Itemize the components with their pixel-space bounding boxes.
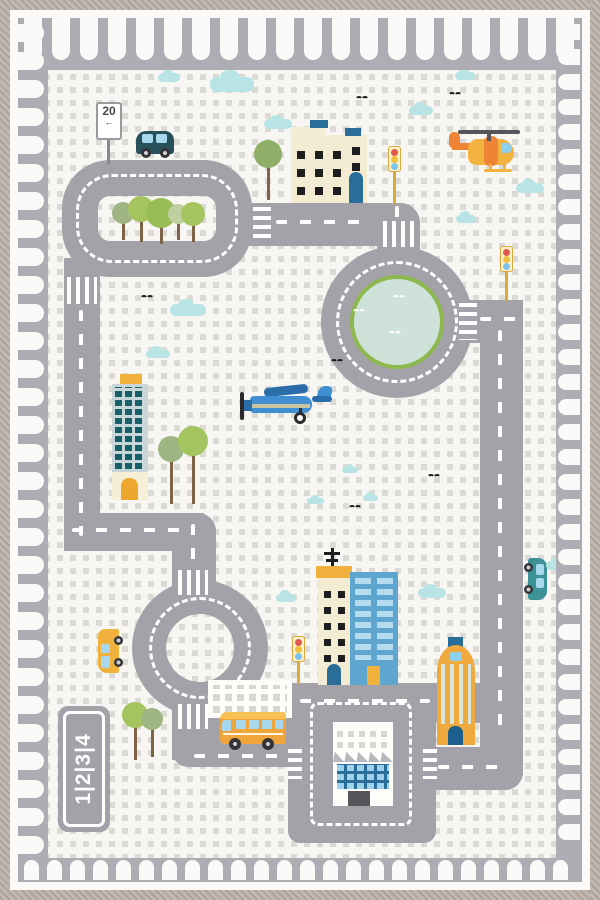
road-dash: [194, 754, 290, 758]
bird-icon: [388, 331, 402, 339]
border-tab: [231, 860, 246, 880]
border-tab: [208, 860, 223, 880]
border-tab: [18, 584, 44, 602]
propeller: [240, 392, 244, 420]
border-tab: [416, 18, 434, 60]
window-grid: [213, 685, 287, 713]
border-tab: [185, 860, 200, 880]
door: [348, 791, 370, 806]
border-tab: [332, 18, 350, 60]
border-tab: [360, 18, 378, 60]
window-grid: [337, 764, 389, 789]
border-tab: [18, 696, 44, 714]
cloud: [170, 304, 206, 316]
border-tab: [80, 18, 98, 60]
play-field: 20 ← 1|2|3|4: [0, 0, 600, 900]
dome-window: [450, 652, 462, 661]
border-tab: [18, 556, 44, 574]
border-tab: [558, 224, 580, 240]
border-tab: [558, 424, 580, 440]
border-tab: [139, 860, 154, 880]
window-column: [355, 578, 371, 660]
bird-icon: [355, 96, 369, 104]
border-tab: [18, 640, 44, 658]
border-tab: [346, 860, 361, 880]
cloud: [363, 495, 378, 501]
border-tab: [18, 752, 44, 770]
bird-icon: [427, 474, 441, 482]
border-tab: [461, 860, 476, 880]
border-tab: [192, 18, 210, 60]
border-tab: [472, 18, 490, 60]
border-tab: [528, 18, 546, 60]
cloud: [276, 594, 296, 602]
border-tab: [323, 860, 338, 880]
cloud: [210, 77, 254, 92]
road-dash: [191, 524, 195, 570]
road-dash: [79, 310, 83, 536]
border-tab: [18, 192, 44, 210]
border-tab: [558, 349, 580, 365]
border-tab: [558, 474, 580, 490]
border-tab: [304, 18, 322, 60]
bird-icon: [140, 295, 154, 303]
border-tab: [18, 472, 44, 490]
cloud: [409, 106, 433, 115]
cloud: [455, 72, 475, 80]
crosswalk: [383, 221, 417, 247]
road-dash: [498, 330, 502, 734]
border-tab: [18, 276, 44, 294]
rug-outer-frame-top: [0, 0, 600, 10]
border-tab: [18, 444, 44, 462]
car-teal: [523, 558, 547, 600]
road-dash: [438, 765, 510, 769]
cloud: [264, 119, 292, 129]
border-tab: [438, 860, 453, 880]
landing-wheel: [294, 412, 306, 424]
border-tab: [18, 220, 44, 238]
border-tab: [530, 860, 545, 880]
door: [327, 664, 341, 685]
border-tab: [558, 24, 580, 40]
crosswalk: [253, 207, 271, 243]
border-tab: [444, 18, 462, 60]
border-tab: [392, 860, 407, 880]
door: [121, 478, 138, 500]
antenna: [331, 548, 334, 566]
border-tab: [18, 136, 44, 154]
border-tab: [18, 500, 44, 518]
speed-limit-value: 20: [98, 104, 120, 118]
road-dash: [72, 528, 182, 532]
border-tab: [93, 860, 108, 880]
border-tab: [558, 299, 580, 315]
cloud: [146, 350, 170, 358]
border-tab: [18, 164, 44, 182]
border-tab: [558, 549, 580, 565]
tree-crown: [254, 140, 282, 168]
crosswalk: [67, 277, 97, 304]
van-yellow: [98, 629, 124, 673]
border-tab: [558, 374, 580, 390]
border-tab: [558, 749, 580, 765]
border-tab: [18, 388, 44, 406]
border-tab: [276, 18, 294, 60]
border-tab: [558, 524, 580, 540]
tree-crown: [178, 426, 208, 456]
border-tab: [248, 18, 266, 60]
tree-crown: [141, 708, 163, 730]
bird-icon: [348, 505, 362, 513]
border-tab: [18, 416, 44, 434]
border-tab: [18, 668, 44, 686]
border-tab: [18, 80, 44, 98]
border-tab: [553, 860, 568, 880]
border-tab: [558, 699, 580, 715]
bird-icon: [352, 309, 366, 317]
crosswalk: [459, 303, 477, 340]
border-tab: [18, 780, 44, 798]
border-tab: [558, 324, 580, 340]
border-tab: [18, 332, 44, 350]
window-grid: [297, 145, 341, 195]
border-tab: [136, 18, 154, 60]
border-tab: [70, 860, 85, 880]
border-tab: [507, 860, 522, 880]
rug-outer-frame-right: [590, 0, 600, 900]
chimney: [310, 120, 328, 128]
border-tab: [18, 724, 44, 742]
border-tab: [162, 860, 177, 880]
border-tab: [558, 649, 580, 665]
border-tab: [558, 199, 580, 215]
crosswalk: [178, 704, 208, 729]
door: [367, 666, 380, 685]
border-tab: [254, 860, 269, 880]
crosswalk: [423, 749, 437, 779]
bird-icon: [448, 92, 462, 100]
tree-crown: [181, 202, 205, 226]
border-tab: [164, 18, 182, 60]
tree-trunk: [170, 456, 173, 504]
rug-outer-frame-left: [0, 0, 10, 900]
border-tab: [558, 99, 580, 115]
border-tab: [277, 860, 292, 880]
rug-outer-frame-bottom: [0, 890, 600, 900]
border-tab: [558, 799, 580, 815]
border-tab: [415, 860, 430, 880]
border-tab: [52, 18, 70, 60]
border-tab: [558, 399, 580, 415]
border-tab: [558, 449, 580, 465]
window-grid: [115, 387, 145, 469]
window-column: [377, 578, 393, 660]
border-tab: [558, 574, 580, 590]
speed-sign-pole: [107, 140, 110, 164]
border-tab: [558, 774, 580, 790]
crosswalk: [288, 749, 302, 779]
door: [349, 172, 363, 203]
lane-numbers-text: 1|2|3|4: [72, 733, 96, 804]
border-tab: [24, 860, 39, 880]
window-grid: [337, 726, 389, 748]
cockpit-window: [501, 143, 512, 153]
border-tab: [558, 124, 580, 140]
border-tab: [369, 860, 384, 880]
door: [448, 726, 463, 745]
cloud: [158, 73, 180, 82]
border-tab: [18, 108, 44, 126]
border-tab: [116, 860, 131, 880]
lane-numbers-sign: 1|2|3|4: [58, 706, 110, 832]
border-tab: [18, 612, 44, 630]
border-tab: [18, 52, 44, 70]
cloud: [342, 467, 358, 473]
border-tab: [558, 674, 580, 690]
cloud: [456, 215, 476, 223]
cloud: [418, 588, 446, 598]
border-tab: [558, 499, 580, 515]
tree-trunk: [192, 450, 195, 504]
road-dash: [300, 699, 430, 703]
border-tab: [558, 824, 580, 840]
border-tab: [18, 24, 44, 42]
play-rug: 20 ← 1|2|3|4: [0, 0, 600, 900]
pond: [350, 275, 444, 369]
border-tab: [47, 860, 62, 880]
border-tab: [558, 599, 580, 615]
bird-icon: [392, 295, 406, 303]
road-dash: [276, 220, 362, 224]
cloud: [516, 183, 544, 193]
border-tab: [558, 174, 580, 190]
bird-icon: [330, 359, 344, 367]
border-tab: [388, 18, 406, 60]
border-tab: [558, 49, 580, 65]
border-tab: [220, 18, 238, 60]
border-tab: [558, 274, 580, 290]
road-dash: [480, 317, 516, 321]
border-tab: [18, 248, 44, 266]
border-tab: [108, 18, 126, 60]
border-tab: [18, 528, 44, 546]
road-dash: [395, 206, 399, 219]
chimney: [345, 128, 361, 136]
crosswalk: [178, 570, 208, 595]
border-tab: [18, 808, 44, 826]
arrow-left-icon: ←: [98, 118, 120, 127]
window-grid: [324, 586, 345, 662]
border-tab: [558, 74, 580, 90]
border-tab: [558, 149, 580, 165]
speed-limit-sign: 20 ←: [96, 102, 122, 140]
border-tab: [18, 304, 44, 322]
border-band-top: [18, 18, 582, 70]
border-tab: [18, 836, 44, 854]
border-tab: [558, 624, 580, 640]
border-tab: [300, 860, 315, 880]
border-tab: [484, 860, 499, 880]
border-tab: [500, 18, 518, 60]
border-tab: [558, 249, 580, 265]
border-tab: [558, 724, 580, 740]
cloud: [307, 498, 324, 504]
border-tab: [18, 360, 44, 378]
